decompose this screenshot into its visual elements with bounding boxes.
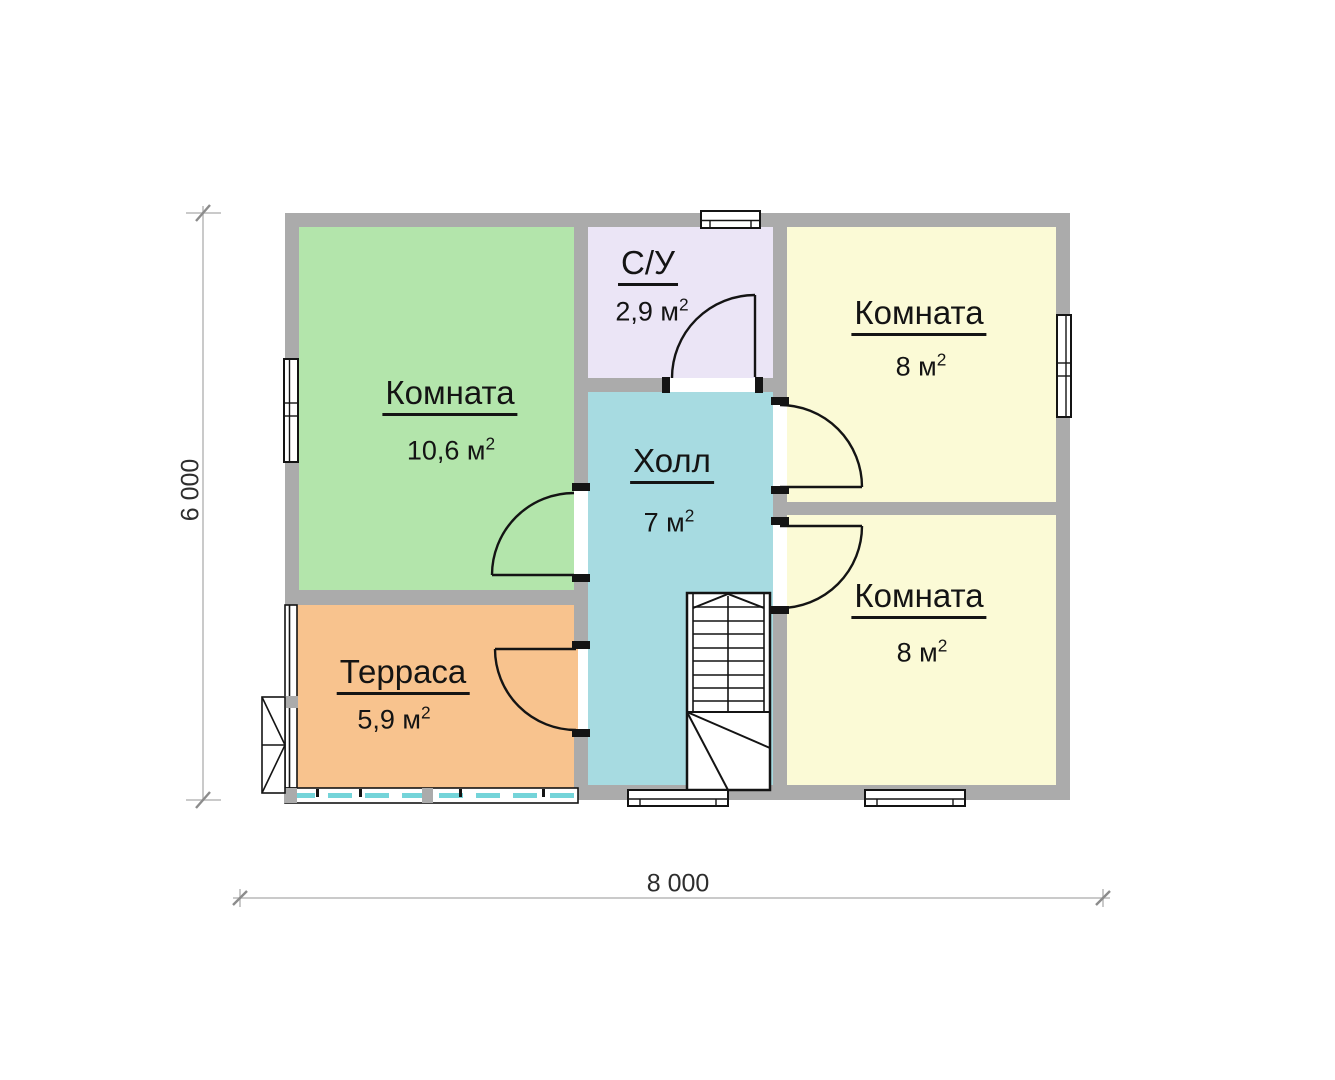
terrace-area-value: 5,9 м: [357, 705, 421, 735]
staircase: [687, 593, 770, 790]
room-top-right-area: 8 м2: [896, 350, 947, 383]
hall-name: Холл: [630, 444, 714, 484]
terrace-fill: [297, 605, 578, 788]
wall-mid-left-a: [574, 227, 588, 490]
hall-area-value: 7 м: [644, 508, 685, 538]
wall-right: [1056, 227, 1070, 800]
window-bottom-left: [628, 790, 728, 806]
room-top-right-area-sup: 2: [937, 350, 947, 370]
bathroom-area-sup: 2: [679, 295, 689, 315]
wall-mid-right-a: [773, 227, 787, 405]
window-right: [1057, 315, 1071, 417]
dimension-width-label: 8 000: [647, 870, 710, 899]
wall-top: [285, 213, 1070, 227]
room-bottom-right-area-sup: 2: [938, 636, 948, 656]
bathroom-area-value: 2,9 м: [615, 297, 679, 327]
bathroom-area: 2,9 м2: [615, 295, 688, 328]
room-top-right-area-value: 8 м: [896, 352, 937, 382]
floor-plan-drawing: [0, 0, 1335, 1080]
room-top-right-name: Комната: [851, 296, 986, 336]
floor-plan-page: Комната 10,6 м2 С/У 2,9 м2 Комната 8 м2 …: [0, 0, 1335, 1080]
wall-mid-left-b: [574, 578, 588, 649]
room-left-area: 10,6 м2: [407, 434, 495, 467]
wall-bathroom-bottom-b: [763, 378, 773, 392]
wall-bathroom-bottom-a: [588, 378, 662, 392]
room-left-area-value: 10,6 м: [407, 436, 486, 466]
terrace-name: Терраса: [337, 655, 470, 695]
hall-area: 7 м2: [644, 506, 695, 539]
bathroom-name: С/У: [618, 246, 678, 286]
room-bottom-right-area-value: 8 м: [897, 638, 938, 668]
terrace-corner-step: [262, 697, 285, 793]
room-left-area-sup: 2: [486, 434, 496, 454]
wall-terrace-top: [285, 590, 588, 605]
hall-area-sup: 2: [685, 506, 695, 526]
window-bottom-right: [865, 790, 965, 806]
wall-mid-right-c: [773, 608, 787, 785]
window-left: [284, 359, 298, 462]
room-bottom-right-name: Комната: [851, 579, 986, 619]
wall-rooms-divider: [787, 502, 1057, 515]
terrace-area-sup: 2: [421, 703, 431, 723]
room-left-name: Комната: [382, 376, 517, 416]
terrace-area: 5,9 м2: [357, 703, 430, 736]
dimension-height-label: 6 000: [177, 459, 206, 522]
window-top: [701, 211, 760, 228]
room-bottom-right-area: 8 м2: [897, 636, 948, 669]
